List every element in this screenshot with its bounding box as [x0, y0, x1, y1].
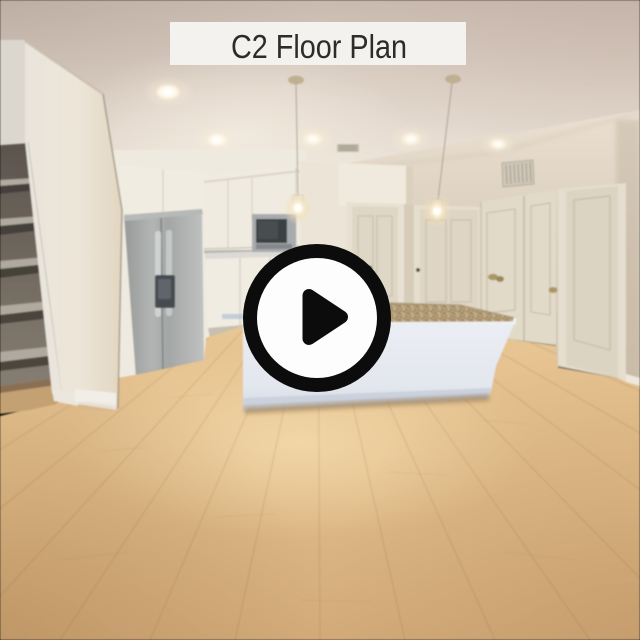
svg-text:C2 Floor Plan: C2 Floor Plan [231, 28, 407, 65]
